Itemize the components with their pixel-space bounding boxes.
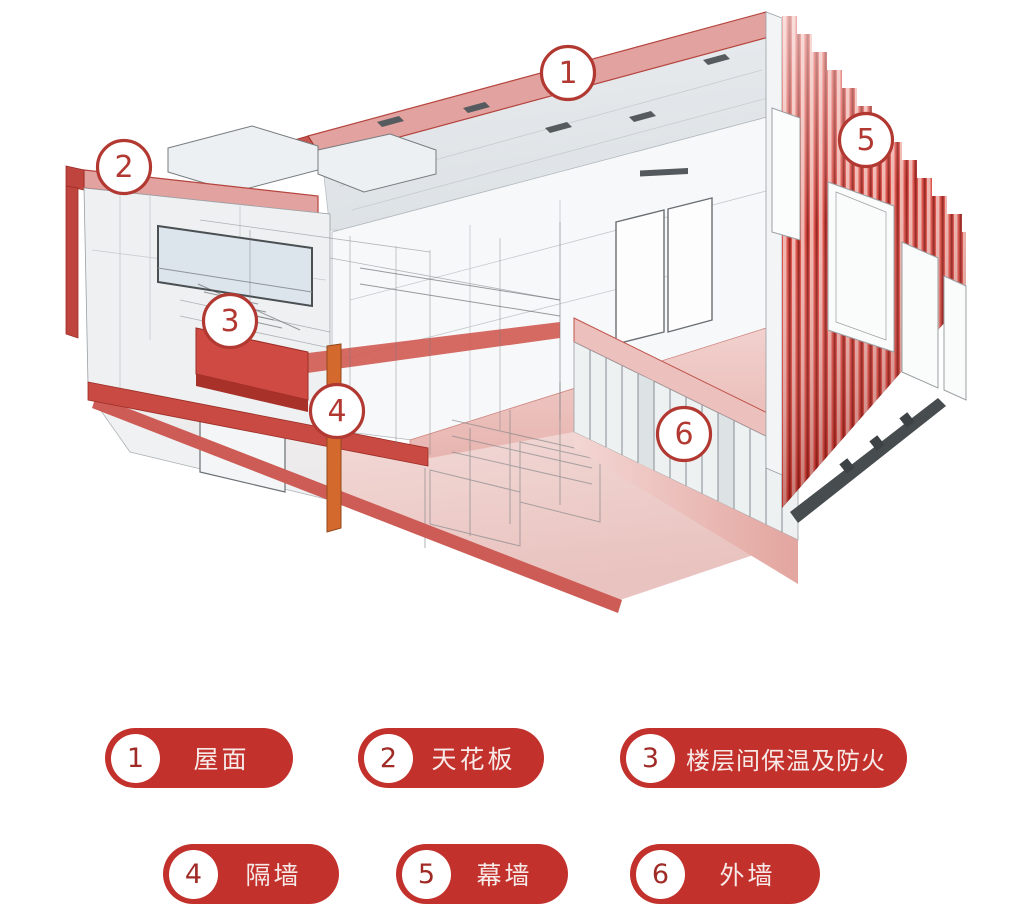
- legend-item-floor-insulation[interactable]: 3 楼层间保温及防火: [620, 728, 907, 788]
- legend-number-badge: 5: [402, 850, 451, 899]
- legend-number-badge: 2: [364, 734, 413, 783]
- svg-text:5: 5: [856, 123, 875, 158]
- legend-number-badge: 6: [636, 850, 685, 899]
- marker-2-ceiling[interactable]: 2: [98, 141, 151, 194]
- legend-label: 幕墙: [451, 856, 568, 892]
- legend-number-badge: 1: [111, 734, 160, 783]
- svg-text:4: 4: [327, 394, 346, 429]
- marker-6-exterior-wall[interactable]: 6: [658, 408, 711, 461]
- marker-3-floor-insulation[interactable]: 3: [204, 295, 257, 348]
- legend-item-curtain-wall[interactable]: 5 幕墙: [396, 844, 568, 904]
- legend-number-badge: 3: [626, 734, 675, 783]
- legend-label: 楼层间保温及防火: [675, 741, 907, 776]
- legend-item-roof[interactable]: 1 屋面: [105, 728, 293, 788]
- legend-item-partition[interactable]: 4 隔墙: [163, 844, 339, 904]
- legend-item-exterior-wall[interactable]: 6 外墙: [630, 844, 820, 904]
- legend-label: 隔墙: [218, 856, 339, 892]
- legend-item-ceiling[interactable]: 2 天花板: [358, 728, 544, 788]
- svg-text:1: 1: [558, 56, 577, 91]
- svg-text:3: 3: [220, 304, 239, 339]
- marker-4-partition[interactable]: 4: [311, 385, 364, 438]
- legend-label: 外墙: [685, 856, 820, 892]
- marker-5-curtain-wall[interactable]: 5: [840, 114, 893, 167]
- legend-label: 屋面: [160, 740, 293, 776]
- curtain-wall: [766, 12, 966, 523]
- svg-text:6: 6: [674, 417, 693, 452]
- legend-label: 天花板: [413, 740, 544, 776]
- marker-1-roof[interactable]: 1: [542, 47, 595, 100]
- svg-text:2: 2: [114, 150, 133, 185]
- legend-number-badge: 4: [169, 850, 218, 899]
